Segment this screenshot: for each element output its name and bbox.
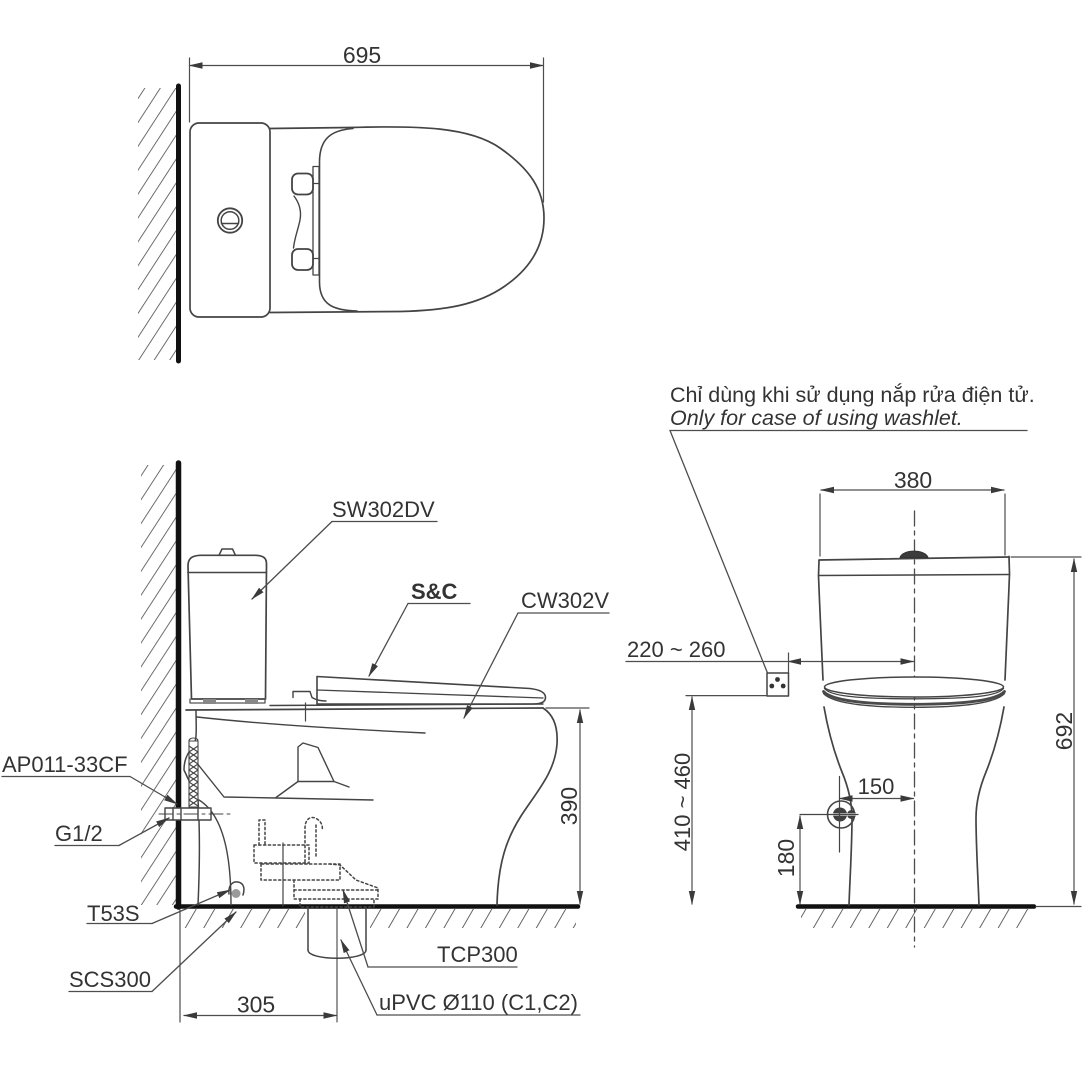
svg-text:180: 180 xyxy=(773,839,799,877)
svg-text:220 ~ 260: 220 ~ 260 xyxy=(627,637,725,662)
svg-text:692: 692 xyxy=(1051,712,1077,750)
svg-text:305: 305 xyxy=(237,992,275,1018)
svg-text:Only for case of using washlet: Only for case of using washlet. xyxy=(670,406,963,430)
svg-text:AP011-33CF: AP011-33CF xyxy=(2,752,128,777)
svg-text:SCS300: SCS300 xyxy=(69,967,151,992)
svg-text:695: 695 xyxy=(343,42,381,68)
svg-text:T53S: T53S xyxy=(87,901,140,926)
svg-text:380: 380 xyxy=(894,467,932,493)
svg-text:S&C: S&C xyxy=(411,579,458,604)
svg-text:410 ~ 460: 410 ~ 460 xyxy=(670,753,695,851)
svg-text:CW302V: CW302V xyxy=(521,588,609,613)
svg-text:G1/2: G1/2 xyxy=(55,821,103,846)
svg-text:Chỉ dùng khi sử dụng nắp rửa đ: Chỉ dùng khi sử dụng nắp rửa điện tử. xyxy=(670,382,1035,407)
svg-text:TCP300: TCP300 xyxy=(437,942,518,967)
svg-text:390: 390 xyxy=(556,787,582,825)
svg-text:150: 150 xyxy=(858,774,895,799)
svg-text:uPVC Ø110 (C1,C2): uPVC Ø110 (C1,C2) xyxy=(379,990,578,1015)
svg-text:SW302DV: SW302DV xyxy=(332,497,435,522)
